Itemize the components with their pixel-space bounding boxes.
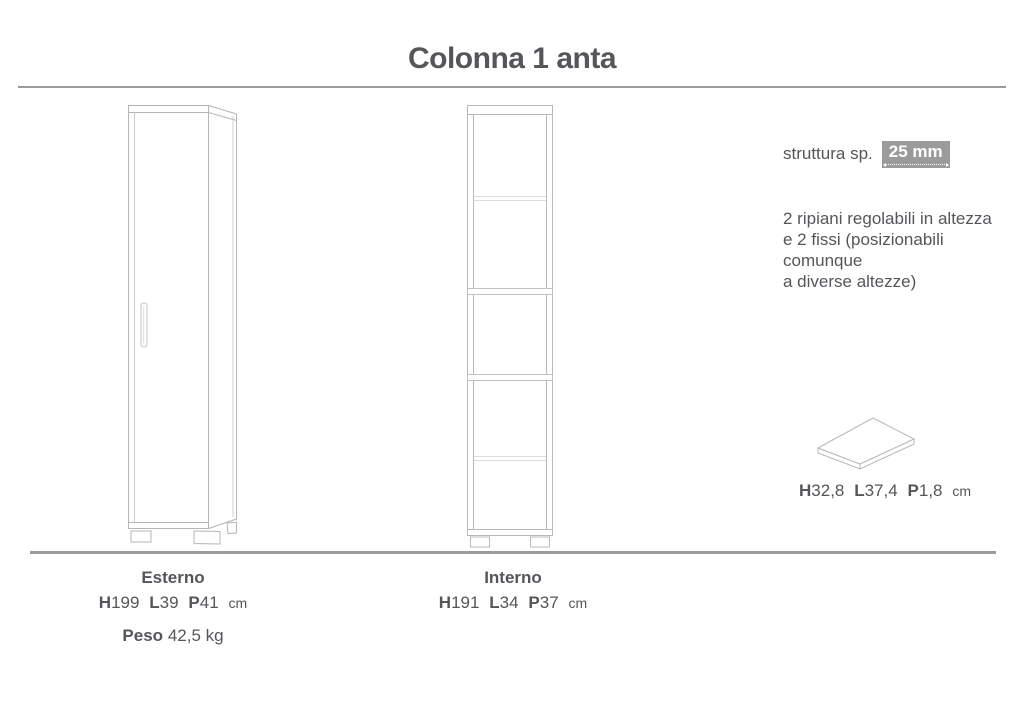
interior-depth-value: 37 [540,593,559,612]
shelf-height: H32,8 [799,481,844,500]
interior-dims-unit: cm [569,595,588,611]
weight-row: Peso42,5 kg [73,626,273,646]
exterior-height-label: H [99,593,111,612]
exterior-height: H199 [99,593,140,612]
shelves-note-line-2: e 2 fissi (posizionabili comunque [783,229,1023,271]
cabinet-foot-front-right [194,531,220,544]
exterior-depth-value: 41 [200,593,219,612]
exterior-dimensions-block: Esterno H199 L39 P41 cm Peso42,5 kg [73,568,273,646]
weight-value: 42,5 kg [168,626,224,645]
exterior-width-value: 39 [160,593,179,612]
structure-thickness-value: 25 mm [889,142,943,161]
exterior-height-value: 199 [111,593,139,612]
structure-thickness-row: struttura sp. 25 mm [783,140,950,168]
exterior-width-label: L [149,593,159,612]
interior-height-value: 191 [451,593,479,612]
exterior-dimensions: H199 L39 P41 cm [73,593,273,613]
floor-line [30,551,996,554]
shelf-depth-value: 1,8 [919,481,943,500]
spec-sheet-page: Colonna 1 anta [0,0,1024,724]
shelf-width-label: L [854,481,864,500]
measure-arrow-right-icon [946,163,949,167]
shelves-note-line-3: a diverse altezze) [783,271,1023,292]
interior-height: H191 [439,593,480,612]
interior-width-value: 34 [500,593,519,612]
shelf-width-value: 37,4 [865,481,898,500]
carcass-outline [468,106,553,536]
shelf-dimensions: H32,8 L37,4 P1,8 cm [799,481,971,501]
exterior-label: Esterno [73,568,273,588]
exterior-depth: P41 [188,593,218,612]
measure-line [885,164,947,165]
cabinet-foot-front-left [131,531,151,542]
fixed-shelf-1 [468,289,553,295]
shelves-note-line-1: 2 ripiani regolabili in altezza [783,208,1023,229]
measure-arrow-left-icon [883,163,886,167]
shelf-height-label: H [799,481,811,500]
shelf-depth: P1,8 [908,481,943,500]
exterior-cabinet-drawing [129,106,237,545]
shelf-depth-label: P [908,481,919,500]
interior-height-label: H [439,593,451,612]
weight-label: Peso [122,626,163,645]
shelf-panel-drawing [818,418,914,469]
interior-dimensions-block: Interno H191 L34 P37 cm [413,568,613,613]
fixed-shelf-2 [468,375,553,381]
exterior-width: L39 [149,593,178,612]
carcass-foot-right [531,537,550,547]
exterior-dims-unit: cm [229,595,248,611]
structure-thickness-value-box: 25 mm [882,141,950,168]
interior-width-label: L [489,593,499,612]
interior-depth-label: P [528,593,539,612]
shelf-dims-unit: cm [952,483,971,499]
interior-label: Interno [413,568,613,588]
cabinet-foot-back [227,522,237,534]
interior-depth: P37 [528,593,558,612]
interior-dimensions: H191 L34 P37 cm [413,593,613,613]
shelves-note: 2 ripiani regolabili in altezza e 2 fiss… [783,208,1023,292]
interior-width: L34 [489,593,518,612]
cabinet-side-panel [209,106,237,529]
shelf-width: L37,4 [854,481,897,500]
interior-cabinet-drawing [468,106,553,548]
structure-thickness-label: struttura sp. [783,144,873,164]
carcass-foot-left [471,537,490,547]
shelf-height-value: 32,8 [811,481,844,500]
exterior-depth-label: P [188,593,199,612]
